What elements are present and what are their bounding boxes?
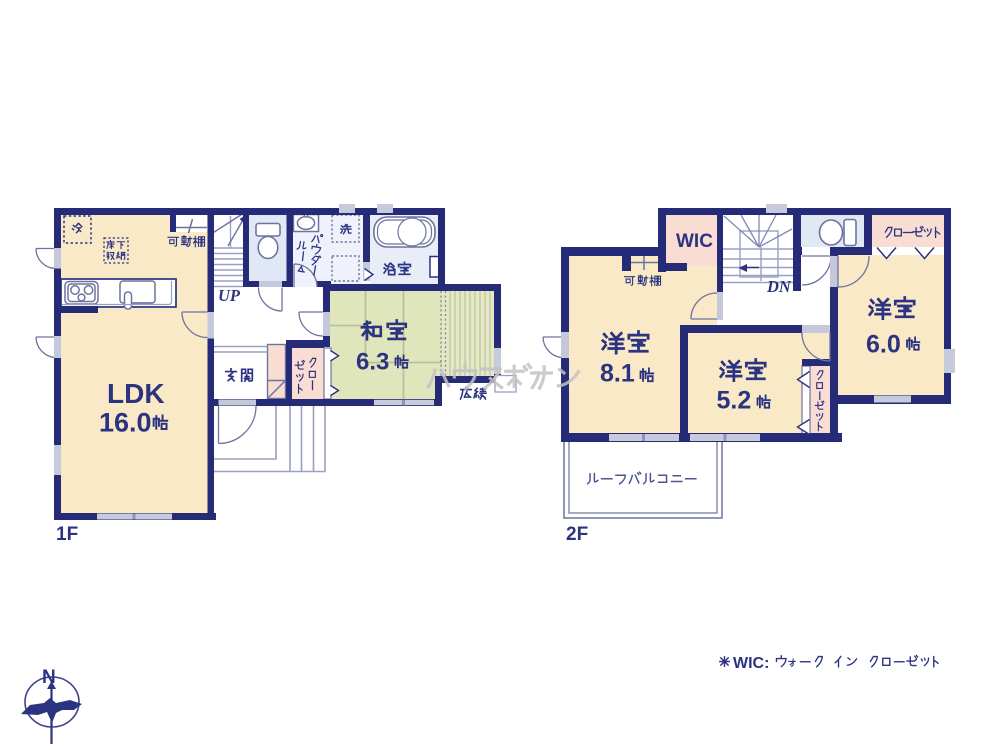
svg-text:8.1: 8.1 xyxy=(600,360,635,388)
svg-text:DN: DN xyxy=(766,277,792,296)
svg-text:UP: UP xyxy=(218,286,241,305)
svg-text:5.2: 5.2 xyxy=(717,387,752,415)
svg-text:WIC: WIC xyxy=(676,231,713,252)
svg-text:6.0: 6.0 xyxy=(866,331,901,359)
svg-text:N: N xyxy=(42,667,56,688)
svg-text:6.3: 6.3 xyxy=(356,349,389,376)
svg-text:WIC:: WIC: xyxy=(733,655,769,672)
svg-text:1F: 1F xyxy=(56,524,78,545)
svg-text:LDK: LDK xyxy=(107,378,165,409)
svg-text:16.0: 16.0 xyxy=(99,408,152,438)
svg-text:2F: 2F xyxy=(566,524,588,545)
